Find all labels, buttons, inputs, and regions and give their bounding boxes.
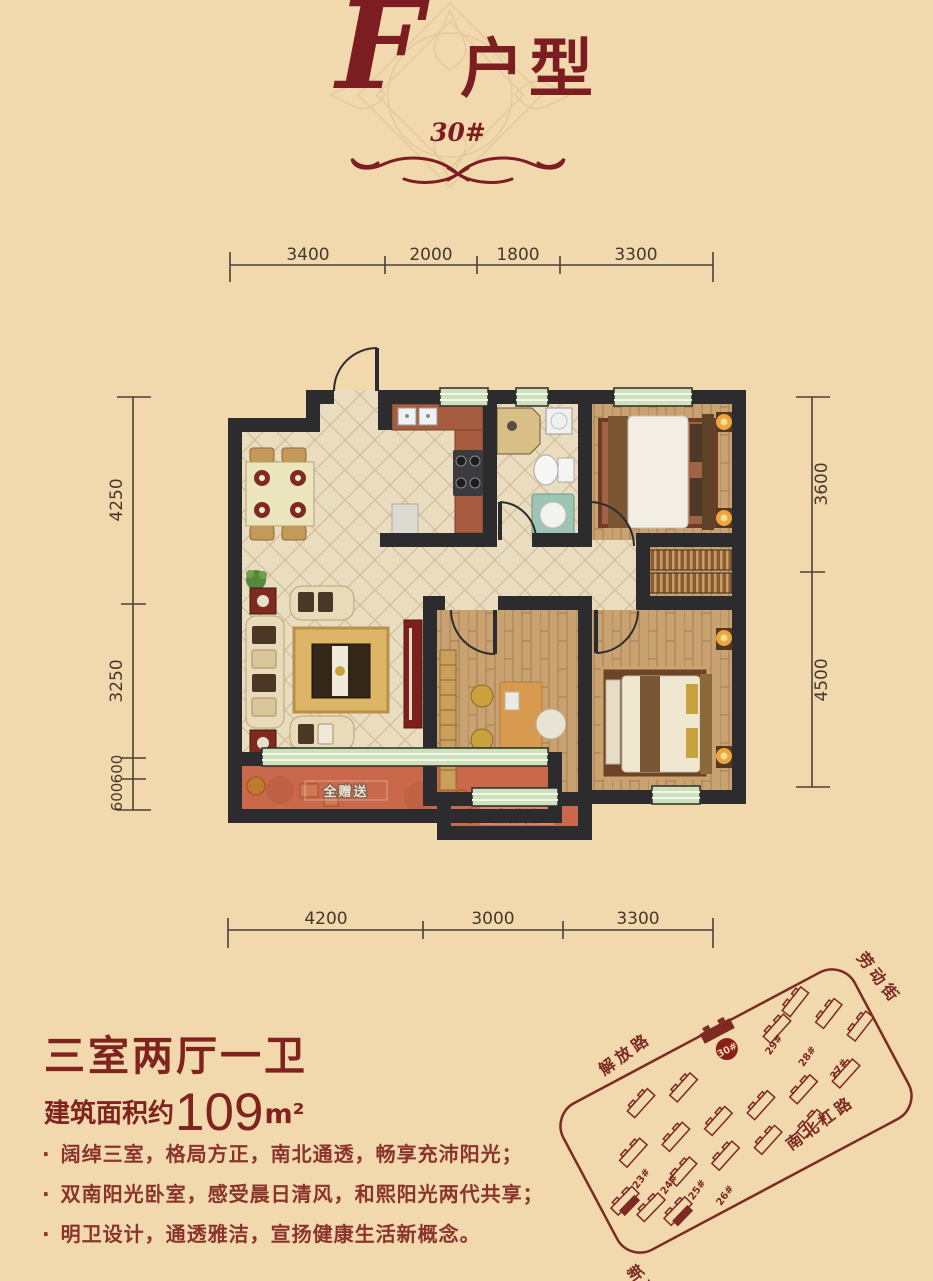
building-25-label: 25# (687, 1178, 709, 1203)
dim-left-4: 600 (108, 783, 126, 812)
window-living-south (262, 748, 548, 766)
dim-top-2: 2000 (409, 245, 452, 265)
flourish-ornament (342, 146, 574, 192)
dim-bottom-2: 3000 (471, 909, 514, 929)
header: F 户型 30# (0, 0, 933, 230)
dim-left-1: 4250 (107, 478, 127, 521)
bullet: · (42, 1222, 51, 1246)
feature-item: · 明卫设计，通透雅洁，宣扬健康生活新概念。 (42, 1214, 544, 1254)
area-unit: m² (264, 1099, 304, 1135)
area-line: 建筑面积约 109 m² (44, 1090, 308, 1135)
building-26-label: 26# (714, 1183, 736, 1208)
dim-top-1: 3400 (286, 245, 329, 265)
building-28-label: 28# (797, 1045, 819, 1070)
dim-top-4: 3300 (614, 245, 657, 265)
dim-left-2: 3250 (107, 659, 127, 702)
bullet: · (42, 1142, 51, 1166)
site-buildings-filled (616, 1174, 696, 1247)
site-map: 30# (540, 938, 933, 1281)
bedroom-1 (600, 412, 732, 530)
gift-label-living-balcony: 全赠送 (322, 784, 368, 800)
window-kitchen (440, 388, 488, 406)
building-23-label: 23# (631, 1167, 653, 1192)
entry-door (334, 348, 377, 391)
feature-list: · 阔绰三室，格局方正，南北通透，畅享充沛阳光； · 双南阳光卧室，感受晨日清风… (42, 1134, 544, 1254)
feature-item: · 阔绰三室，格局方正，南北通透，畅享充沛阳光； (42, 1134, 544, 1174)
dim-top-3: 1800 (496, 245, 539, 265)
flyer-page: F 户型 30# (0, 0, 933, 1281)
window-bedroom-2-south (652, 786, 700, 804)
page-title: 户型 (460, 38, 598, 102)
area-prefix: 建筑面积约 (44, 1093, 174, 1135)
summary-block: 三室两厅一卫 建筑面积约 109 m² (44, 1022, 308, 1135)
feature-text: 双南阳光卧室，感受晨日清风，和熙阳光两代共享； (61, 1182, 544, 1206)
dim-left-3: 600 (108, 755, 126, 784)
dim-bottom-3: 3300 (616, 909, 659, 929)
window-bedroom-1 (614, 388, 692, 406)
dim-right-1: 3600 (812, 462, 832, 505)
area-value: 109 (174, 1090, 264, 1135)
street-laodong-street: 劳动街 (853, 948, 905, 1007)
window-study-south (472, 788, 558, 806)
feature-item: · 双南阳光卧室，感受晨日清风，和熙阳光两代共享； (42, 1174, 544, 1214)
window-bathroom (516, 388, 548, 406)
bullet: · (42, 1182, 51, 1206)
feature-text: 阔绰三室，格局方正，南北通透，畅享充沛阳光； (61, 1142, 523, 1166)
floor-plan: 3400 2000 1800 3300 4200 3000 3300 4250 … (0, 230, 933, 975)
site-boundary (551, 960, 920, 1261)
unit-letter: F (336, 0, 423, 106)
building-29-label: 29# (763, 1033, 785, 1058)
street-jiefang-road: 解放路 (595, 1028, 655, 1079)
dim-right-2: 4500 (812, 658, 832, 701)
feature-text: 明卫设计，通透雅洁，宣扬健康生活新概念。 (61, 1222, 481, 1246)
building-number: 30# (388, 118, 528, 147)
street-xinyun-avenue: 新运大街 (623, 1261, 687, 1281)
dim-bottom-1: 4200 (304, 909, 347, 929)
layout-title: 三室两厅一卫 (44, 1022, 308, 1082)
